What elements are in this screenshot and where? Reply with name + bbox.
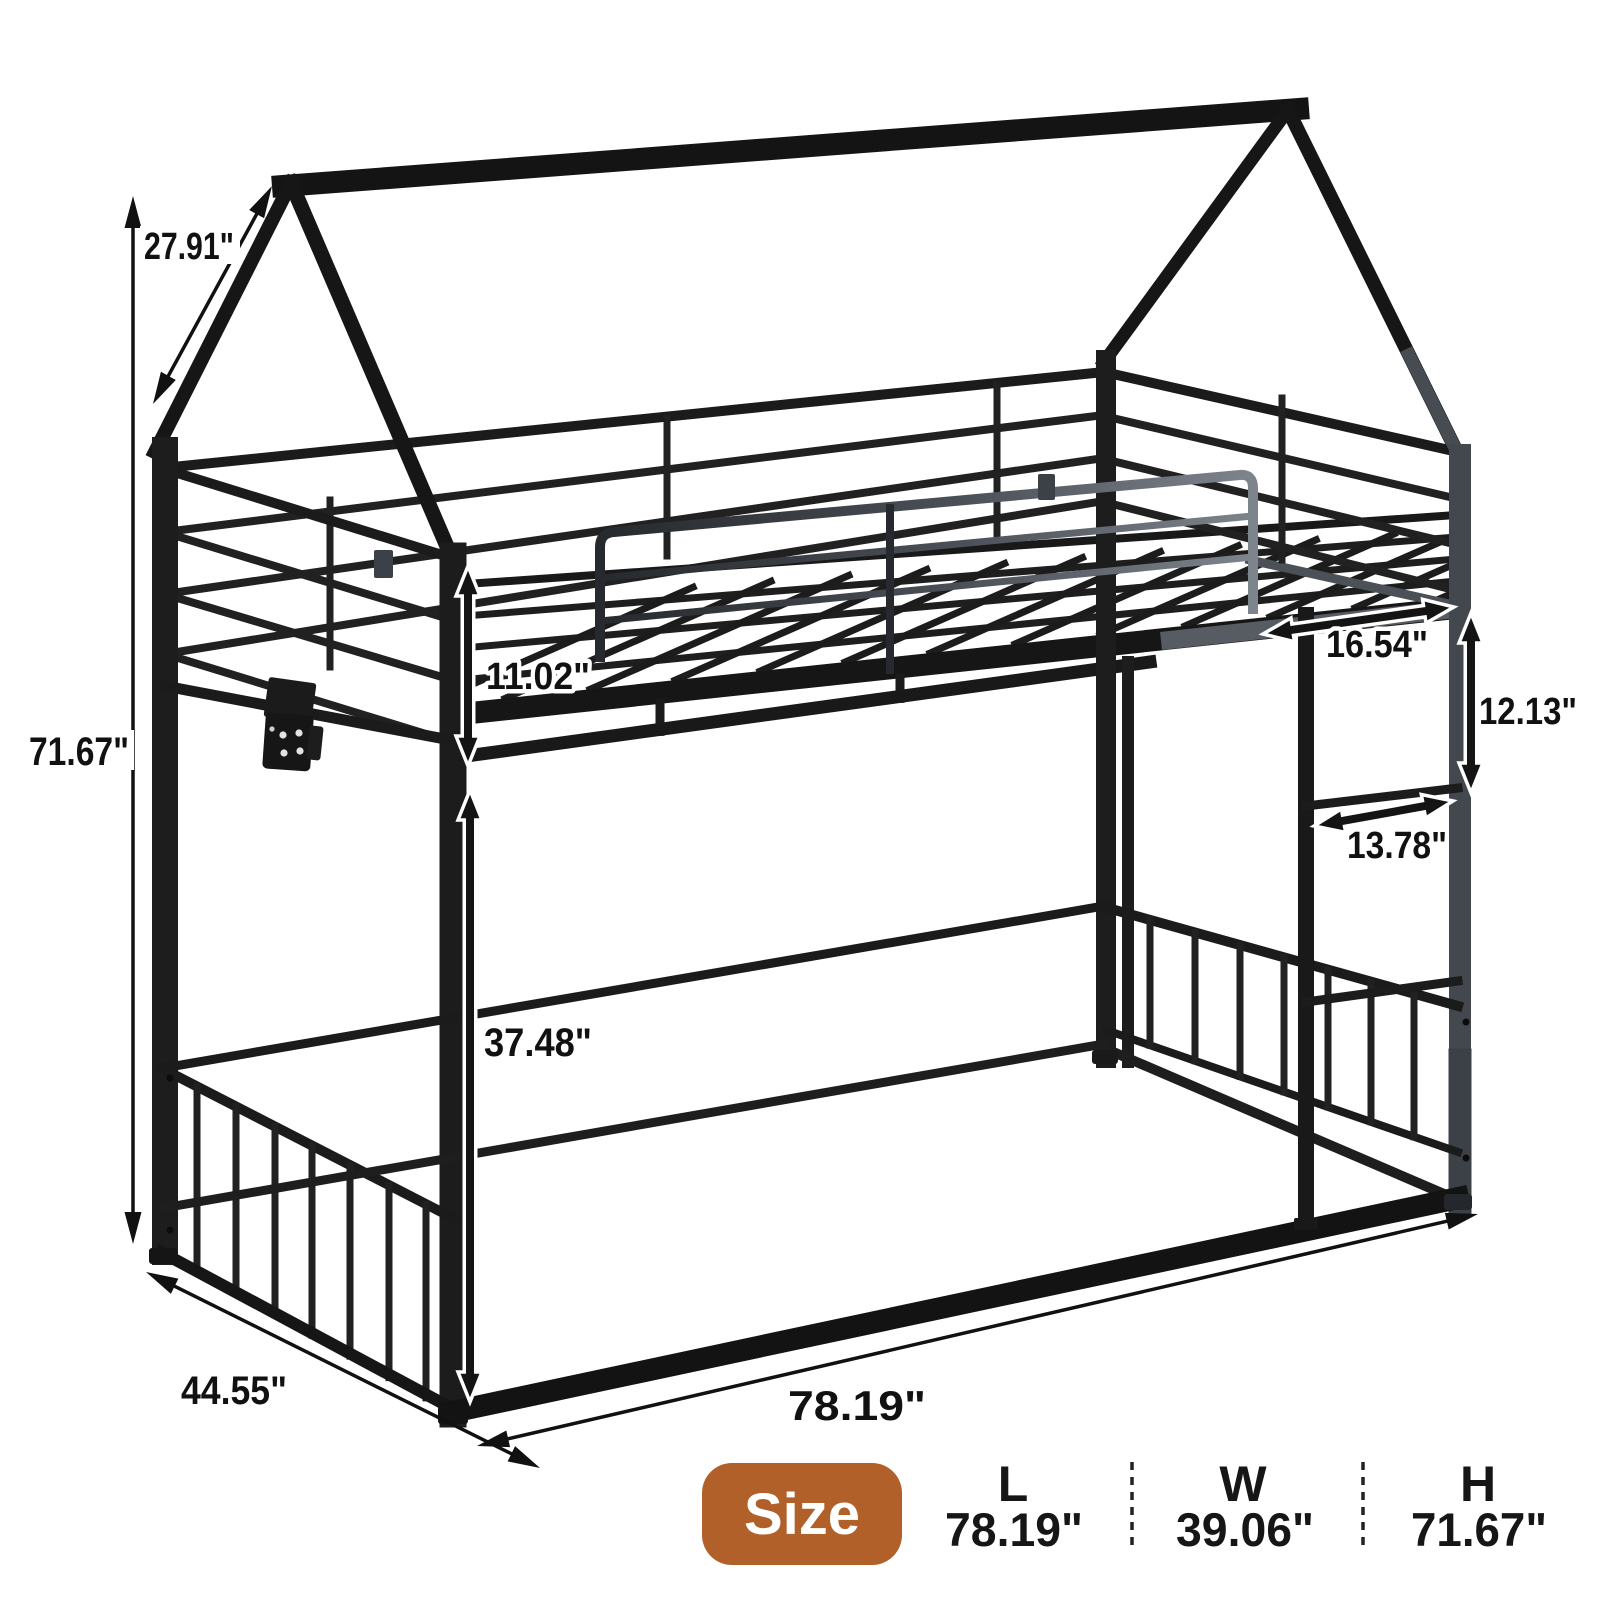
svg-text:Size: Size bbox=[744, 1482, 860, 1547]
svg-text:27.91": 27.91" bbox=[144, 226, 234, 268]
svg-text:12.13": 12.13" bbox=[1479, 691, 1577, 733]
svg-text:39.06": 39.06" bbox=[1176, 1503, 1314, 1556]
svg-text:11.02": 11.02" bbox=[486, 656, 590, 698]
svg-text:78.19": 78.19" bbox=[788, 1382, 926, 1429]
svg-text:44.55": 44.55" bbox=[181, 1369, 287, 1413]
svg-text:13.78": 13.78" bbox=[1347, 825, 1447, 867]
svg-text:71.67": 71.67" bbox=[29, 730, 129, 774]
svg-text:16.54": 16.54" bbox=[1326, 624, 1428, 666]
svg-text:71.67": 71.67" bbox=[1411, 1503, 1547, 1556]
svg-text:37.48": 37.48" bbox=[484, 1021, 592, 1065]
svg-text:78.19": 78.19" bbox=[945, 1503, 1083, 1556]
